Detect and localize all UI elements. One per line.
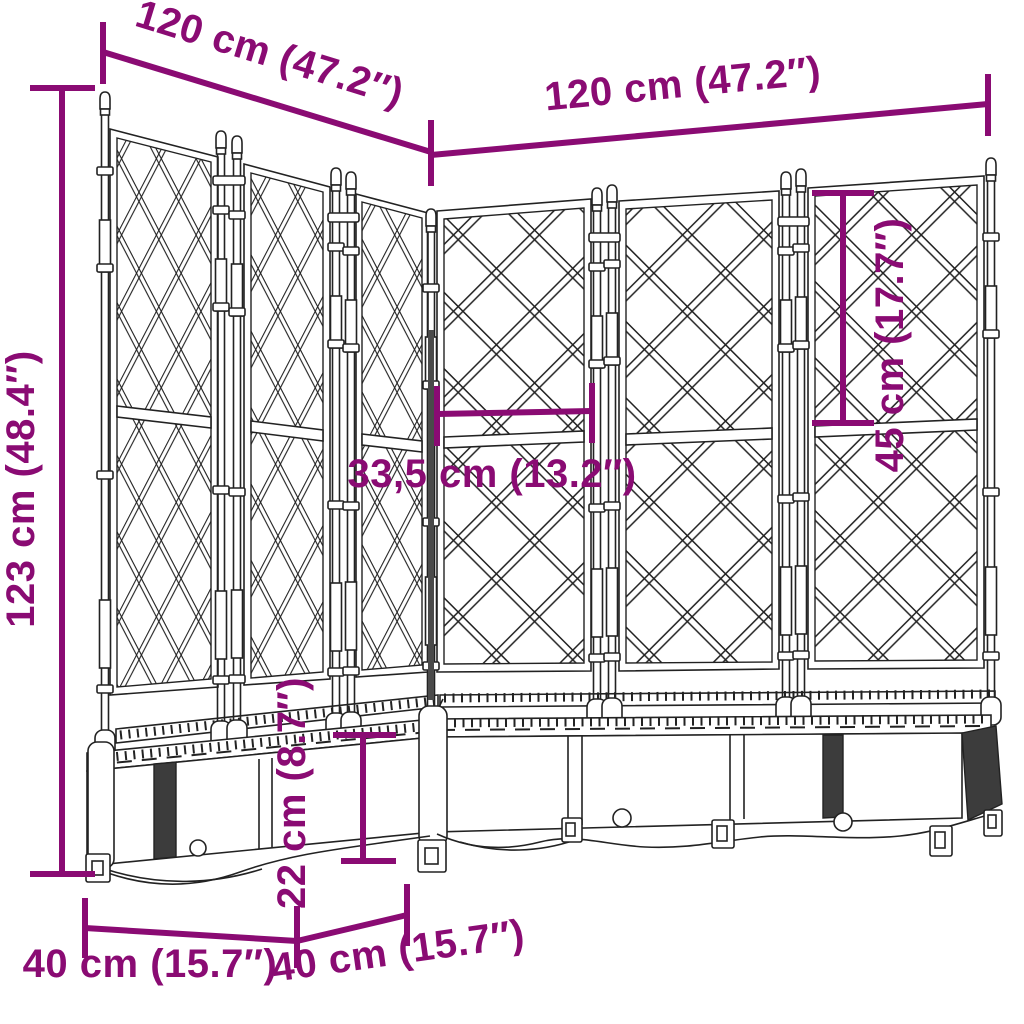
post-clamp (589, 360, 605, 368)
corner-post-shadow (428, 330, 434, 700)
post-clamp (328, 243, 344, 251)
trellis-post (983, 158, 999, 707)
post-clamp (229, 211, 245, 219)
post-clamp (983, 488, 999, 496)
trellis-panel-left-1 (110, 129, 218, 695)
post-clamp (213, 206, 229, 214)
dimension-label-panel-width: 33,5 cm (13.2″) (347, 452, 636, 496)
finial-icon (426, 209, 436, 226)
trellis-panel-left-3 (356, 194, 428, 677)
post-clamp (97, 264, 113, 272)
post-clamp (793, 651, 809, 659)
trellis-post (793, 169, 809, 706)
post-clamp (778, 652, 794, 660)
post-clamp (793, 493, 809, 501)
post-clamp (213, 486, 229, 494)
apron-wave-right-2 (460, 840, 575, 850)
post-clamp (589, 504, 605, 512)
post-clamp (97, 471, 113, 479)
post-clamp (229, 488, 245, 496)
dimension-label-front-depth: 40 cm (15.7″) (269, 912, 527, 991)
post-clamp (778, 495, 794, 503)
dimension-label-right-run: 120 cm (47.2″) (543, 49, 823, 120)
post-clamp (97, 167, 113, 175)
trellis-panel-right-1 (437, 199, 591, 672)
post-sleeve (232, 590, 243, 658)
post-link-clamp (328, 213, 359, 222)
dimension-label-box-height: 22 cm (8.7″) (270, 677, 314, 909)
post-clamp (328, 340, 344, 348)
post-clamp (778, 344, 794, 352)
post-clamp (328, 501, 344, 509)
dimension-label-total-height: 123 cm (48.4″) (0, 350, 43, 627)
trellis-post (229, 136, 245, 730)
post-link-clamp (589, 233, 620, 242)
post-clamp (343, 247, 359, 255)
post-sleeve (607, 568, 618, 636)
post-clamp (229, 308, 245, 316)
post-link-clamp (213, 176, 245, 185)
post-clamp (778, 247, 794, 255)
dimension-total-height: 123 cm (48.4″) (0, 88, 95, 874)
post-clamp (793, 244, 809, 252)
post-sleeve (331, 583, 342, 651)
dimension-label-left-run: 120 cm (47.2″) (131, 0, 409, 115)
dimension-right-run-length: 120 cm (47.2″) (431, 49, 988, 155)
post-clamp (983, 652, 999, 660)
post-sleeve (592, 569, 603, 637)
post-sleeve (346, 582, 357, 650)
post-clamp (423, 284, 439, 292)
post-sleeve (986, 567, 997, 635)
finial-icon (607, 185, 617, 202)
post-clamp (213, 303, 229, 311)
post-sleeve (781, 567, 792, 635)
post-clamp (229, 675, 245, 683)
post-clamp (589, 263, 605, 271)
post-sleeve (100, 600, 111, 668)
post-clamp (213, 676, 229, 684)
finial-icon (986, 158, 996, 175)
dimension-label-upper-trellis: 45 cm (17.7″) (868, 218, 912, 473)
finial-icon (781, 172, 791, 189)
post-clamp (983, 233, 999, 241)
post-link-clamp (778, 217, 809, 226)
post-sleeve (216, 591, 227, 659)
planter-end-side-right (962, 726, 1002, 820)
trellis-panel-left-2 (244, 164, 330, 685)
dimension-label-left-depth: 40 cm (15.7″) (23, 942, 278, 986)
finial-icon (331, 168, 341, 185)
post-clamp (589, 654, 605, 662)
post-clamp (343, 667, 359, 675)
post-clamp (343, 344, 359, 352)
finial-icon (100, 92, 110, 109)
finial-icon (346, 172, 356, 189)
planter-corner-pillar (419, 706, 447, 846)
planter-divider-dark-right (823, 735, 843, 818)
trellis-post (778, 172, 794, 707)
planter-trellis-illustration: 120 cm (47.2″) 120 cm (47.2″) 123 cm (48… (0, 0, 1024, 1024)
post-clamp (983, 330, 999, 338)
post-clamp (328, 668, 344, 676)
planter-face-right (433, 733, 962, 832)
planter-divider-dark-left (154, 762, 176, 859)
trellis-panel-right-2 (619, 191, 779, 671)
post-clamp (604, 502, 620, 510)
post-sleeve (796, 566, 807, 634)
post-clamp (604, 653, 620, 661)
dimension-left-depth: 40 cm (15.7″) (23, 898, 297, 986)
finial-icon (232, 136, 242, 153)
post-clamp (604, 260, 620, 268)
planter-left-end-pillar (88, 742, 114, 868)
trellis-post (604, 185, 620, 708)
post-clamp (97, 685, 113, 693)
post-clamp (604, 357, 620, 365)
post-clamp (793, 341, 809, 349)
product-dimension-diagram: 120 cm (47.2″) 120 cm (47.2″) 123 cm (48… (0, 0, 1024, 1024)
finial-icon (796, 169, 806, 186)
finial-icon (592, 188, 602, 205)
finial-icon (216, 131, 226, 148)
post-clamp (343, 502, 359, 510)
